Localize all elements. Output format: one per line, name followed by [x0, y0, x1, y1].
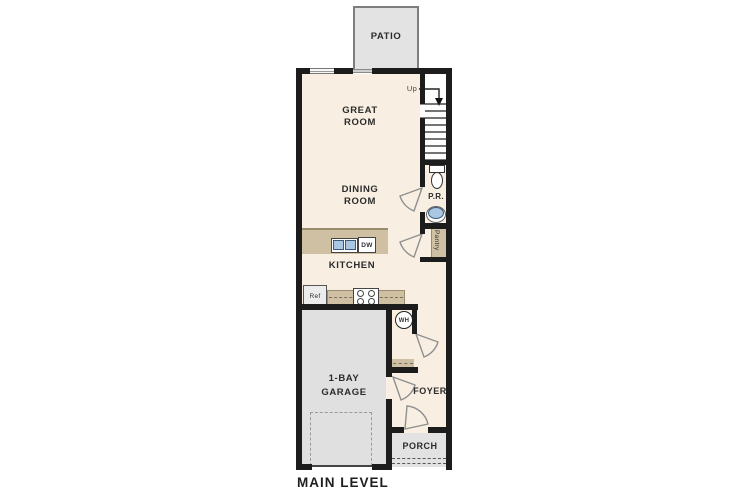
kitchen-label: KITCHEN [310, 260, 394, 272]
plan-title: MAIN LEVEL [297, 475, 437, 490]
wall [296, 68, 302, 470]
garage-door-line [312, 465, 372, 467]
wall [386, 427, 404, 433]
window [310, 68, 334, 74]
wall [420, 223, 452, 229]
wall [412, 308, 417, 334]
wall [428, 427, 452, 433]
closet-door-arc [416, 334, 438, 357]
powder-room-label: P.R. [425, 192, 447, 201]
wall [296, 464, 312, 470]
wall [386, 399, 392, 467]
door-swings-overlay [0, 0, 750, 500]
pantry-door-arc [400, 234, 422, 257]
window-mullion [310, 71, 334, 72]
pr-door-arc [400, 188, 422, 211]
patio-sliding-door [353, 69, 372, 73]
wall [372, 68, 452, 74]
stairs-up-arrowhead [435, 98, 443, 106]
wall [334, 68, 353, 74]
wall [420, 74, 425, 104]
garage-label: 1-BAY GARAGE [314, 372, 374, 400]
stair-treads [425, 104, 446, 160]
floor-plan: PATIO DW Ref Pantry WH [0, 0, 750, 500]
stairs-up-label: Up [405, 84, 419, 93]
dining-room-label: DINING ROOM [330, 184, 390, 208]
stair-entry-threshold [420, 104, 425, 118]
foyer-label: FOYER [410, 387, 450, 396]
wall [420, 160, 452, 165]
wall [420, 118, 425, 187]
wall [296, 304, 418, 310]
wall [420, 257, 452, 262]
great-room-label: GREAT ROOM [330, 105, 390, 129]
front-door-arc [405, 406, 428, 429]
wall [386, 310, 392, 377]
wall [446, 68, 452, 470]
porch-label: PORCH [396, 442, 444, 451]
